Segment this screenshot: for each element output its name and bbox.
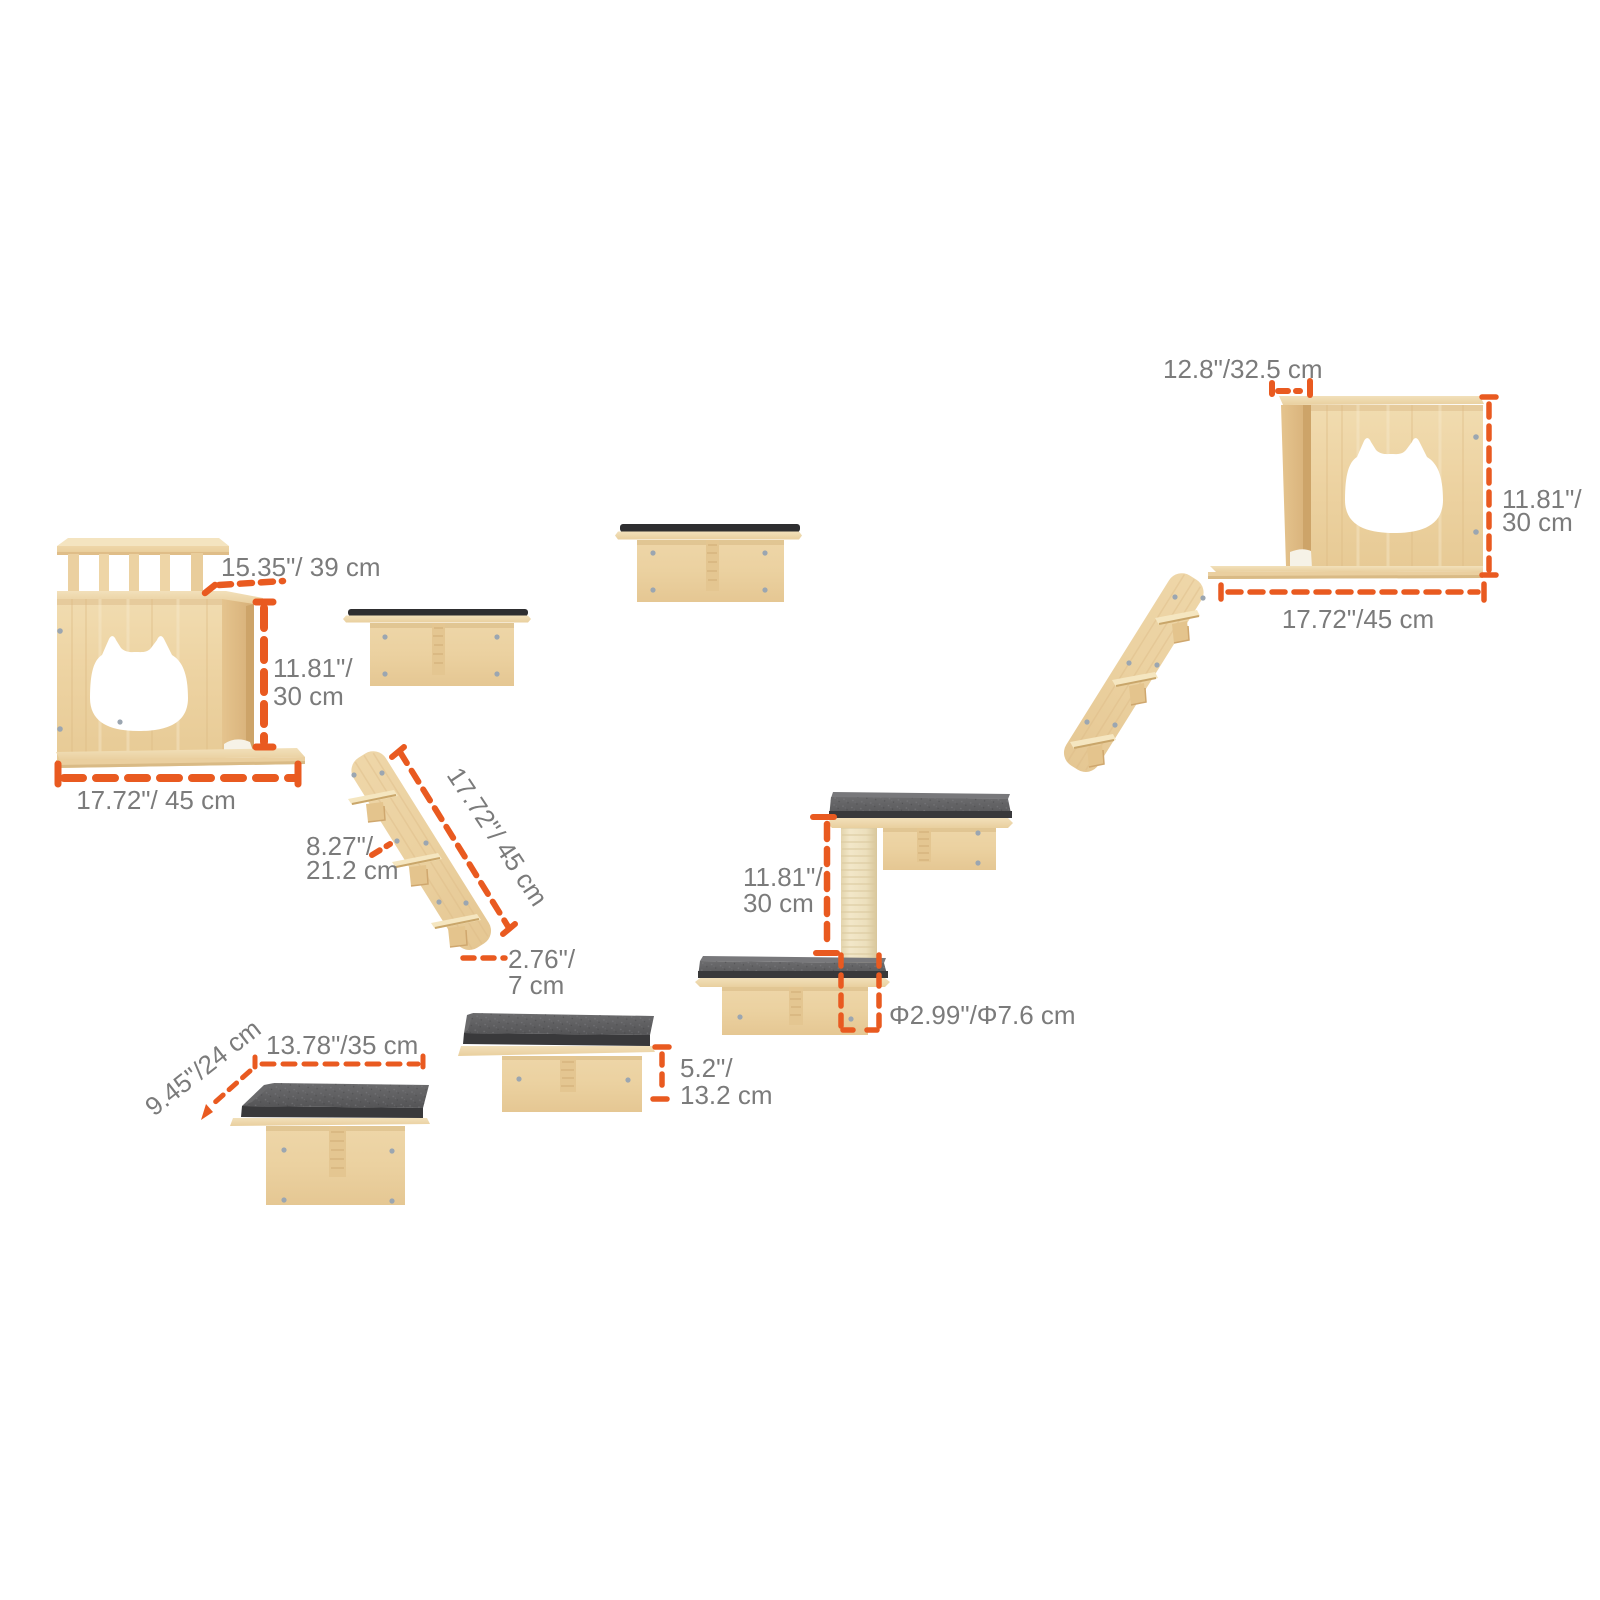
svg-text:30 cm: 30 cm — [1502, 507, 1573, 537]
svg-text:15.35"/ 39 cm: 15.35"/ 39 cm — [221, 552, 381, 582]
svg-text:11.81"/: 11.81"/ — [273, 653, 353, 683]
svg-text:7 cm: 7 cm — [508, 970, 564, 1000]
svg-text:Φ2.99"/Φ7.6 cm: Φ2.99"/Φ7.6 cm — [889, 1000, 1076, 1030]
svg-text:5.2"/: 5.2"/ — [680, 1053, 733, 1083]
svg-text:13.2 cm: 13.2 cm — [680, 1080, 773, 1110]
svg-text:12.8"/32.5 cm: 12.8"/32.5 cm — [1163, 354, 1323, 384]
svg-text:13.78"/35 cm: 13.78"/35 cm — [266, 1030, 418, 1060]
svg-text:17.72"/45 cm: 17.72"/45 cm — [1282, 604, 1434, 634]
svg-text:30 cm: 30 cm — [273, 681, 344, 711]
svg-text:21.2 cm: 21.2 cm — [306, 855, 399, 885]
svg-text:17.72"/ 45 cm: 17.72"/ 45 cm — [76, 785, 236, 815]
svg-text:30 cm: 30 cm — [743, 888, 814, 918]
